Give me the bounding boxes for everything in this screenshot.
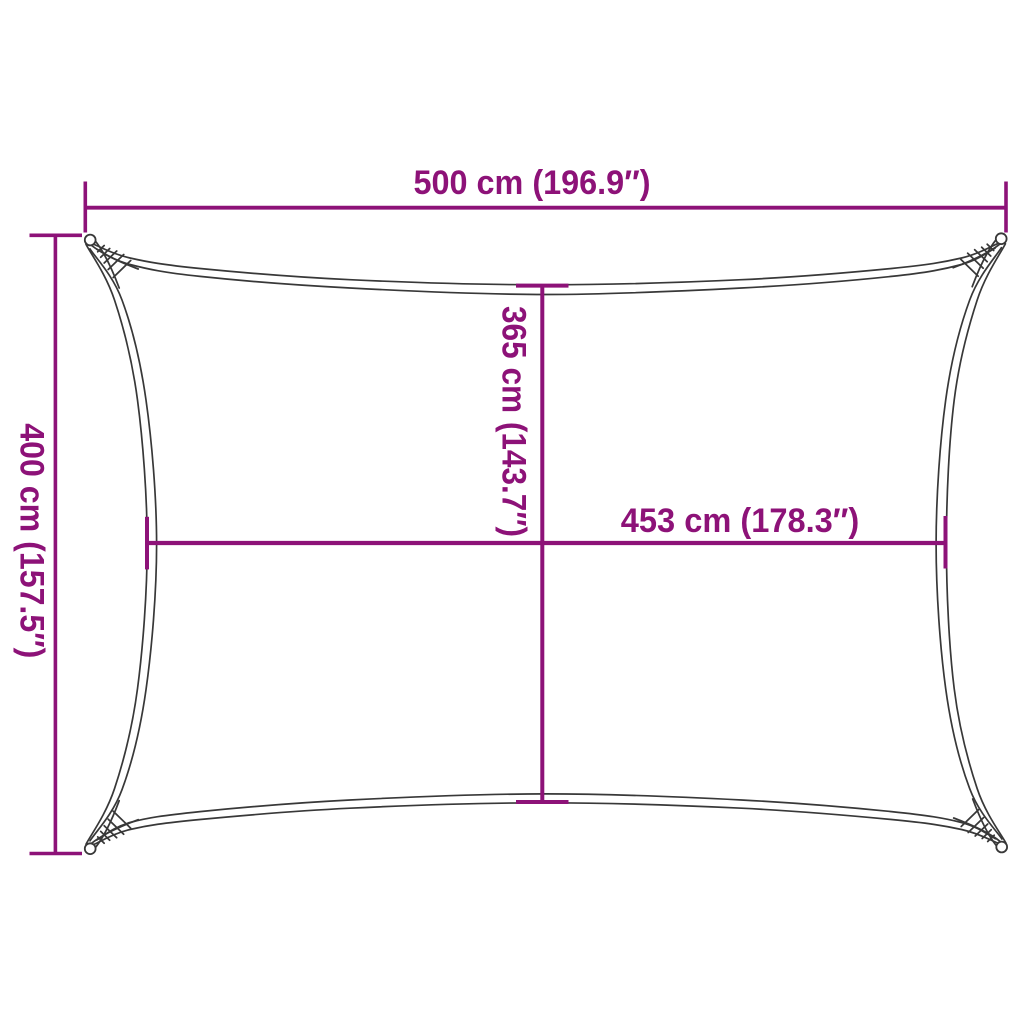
svg-text:453 cm (178.3″): 453 cm (178.3″)	[621, 502, 860, 540]
svg-text:365 cm (143.7″): 365 cm (143.7″)	[494, 306, 532, 537]
svg-text:500 cm (196.9″): 500 cm (196.9″)	[414, 164, 651, 202]
svg-text:400 cm (157.5″): 400 cm (157.5″)	[13, 423, 51, 658]
